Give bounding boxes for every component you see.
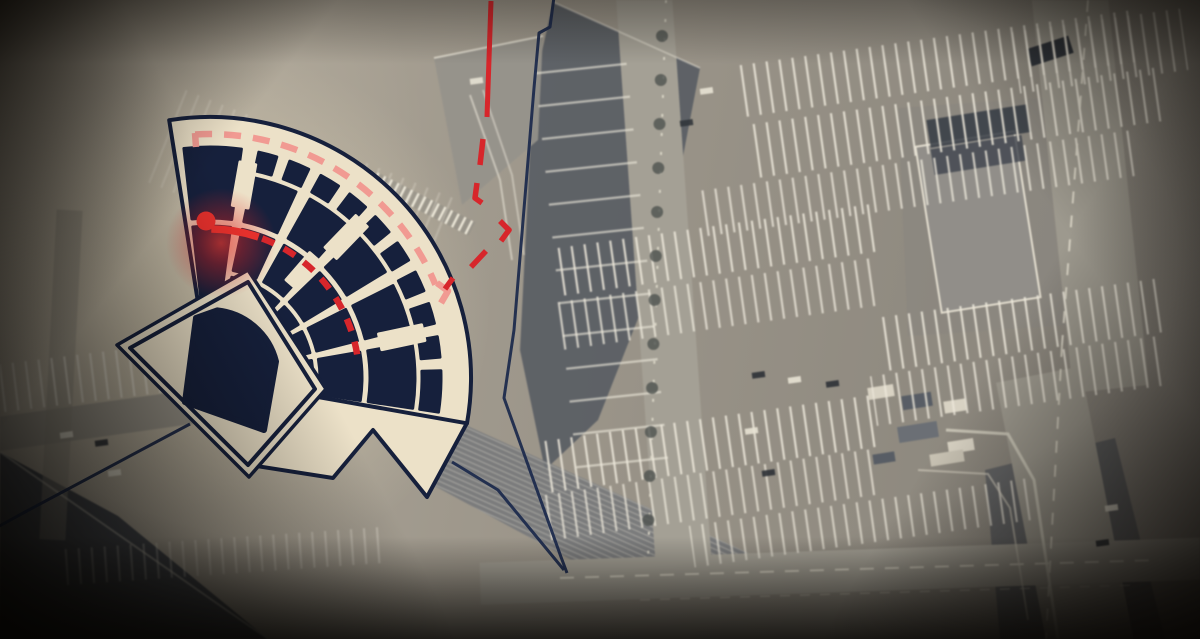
approach-route-dash	[475, 183, 482, 203]
entry-marker-dot	[197, 212, 216, 231]
building-outline-path	[0, 424, 190, 529]
corridor-route-bend	[195, 133, 196, 147]
seating-block-parterre-rear	[368, 343, 415, 408]
approach-route-solid	[487, 1, 491, 117]
venue-diagram-overlay	[0, 0, 1200, 639]
seating-fan	[117, 117, 471, 497]
seating-block-balcony	[420, 371, 441, 412]
approach-route-dash	[500, 221, 509, 241]
impact-glow	[166, 188, 276, 298]
seating-block-balcony	[255, 152, 277, 175]
graphic-canvas	[0, 0, 1200, 639]
approach-route-dash	[471, 251, 486, 267]
seating-block-parterre-mid	[318, 352, 362, 400]
building-outline-path	[504, 0, 567, 573]
approach-route-dash	[480, 139, 483, 165]
